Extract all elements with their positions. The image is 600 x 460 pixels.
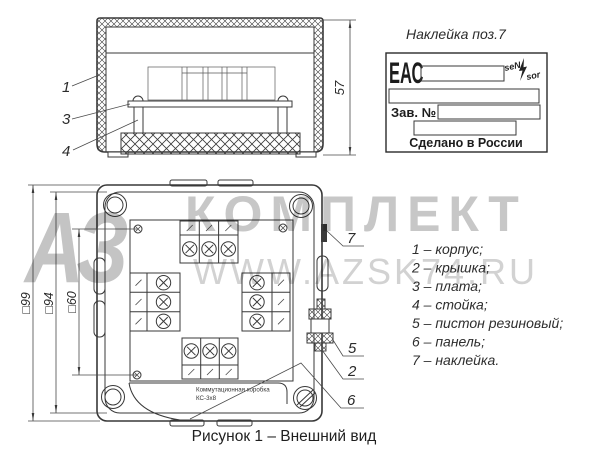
parts-list-item: 4 – стойка; xyxy=(412,297,488,313)
parts-list-item: 6 – панель; xyxy=(412,334,485,350)
eac-mark: ЕАС xyxy=(389,57,423,90)
terminal-block-left xyxy=(130,273,180,331)
technical-drawing-canvas: 57 1 3 4 Наклейка поз.7 ЕАС seN sor Зав.… xyxy=(0,0,600,460)
nameplate-line1: Коммутационная коробка xyxy=(196,387,270,394)
top-wall-hatch xyxy=(97,18,323,27)
parts-list-item: 7 – наклейка. xyxy=(412,352,499,368)
case-outline xyxy=(97,18,323,152)
side-knockout xyxy=(94,301,105,337)
callout-4: 4 xyxy=(62,143,70,160)
callout-5: 5 xyxy=(348,340,357,357)
stand-right xyxy=(278,107,287,133)
side-view-drawing: 57 1 3 4 xyxy=(62,18,356,160)
terminal-profile-dividers xyxy=(182,67,247,100)
callout-1: 1 xyxy=(62,79,70,96)
figure-caption: Рисунок 1 – Внешний вид xyxy=(192,428,377,445)
plate xyxy=(128,101,292,107)
sticker-title: Наклейка поз.7 xyxy=(406,26,507,42)
dimension-57: 57 xyxy=(332,80,347,95)
plate-clip-right xyxy=(278,96,288,101)
drawing-page: 57 1 3 4 Наклейка поз.7 ЕАС seN sor Зав.… xyxy=(0,0,600,460)
watermark-site: WWW.AZSK74.RU xyxy=(193,251,538,292)
serial-number-label: Зав. № xyxy=(391,105,436,120)
sticker-label-drawing: Наклейка поз.7 ЕАС seN sor Зав. № Сделан… xyxy=(386,26,547,152)
left-wall-hatch xyxy=(97,27,106,151)
made-in-russia-label: Сделано в России xyxy=(409,136,522,150)
parts-list-item: 5 – пистон резиновый; xyxy=(412,315,563,331)
bottom-panel xyxy=(121,133,300,154)
azsk-logo-watermark: АЗ xyxy=(23,192,127,304)
svg-text:ЕАС: ЕАС xyxy=(389,57,423,90)
stand-left xyxy=(134,107,143,133)
terminal-profile xyxy=(148,67,275,100)
rubber-piston xyxy=(307,299,333,351)
nameplate-line2: КС-3х8 xyxy=(196,395,217,402)
watermark-brand: КОМПЛЕКТ xyxy=(185,186,527,242)
callout-2: 2 xyxy=(347,363,357,380)
plate-clip-left xyxy=(133,96,143,101)
right-wall-hatch xyxy=(314,27,323,151)
callout-3: 3 xyxy=(62,111,71,128)
callout-6: 6 xyxy=(347,392,356,409)
terminal-block-bottom xyxy=(182,338,238,379)
